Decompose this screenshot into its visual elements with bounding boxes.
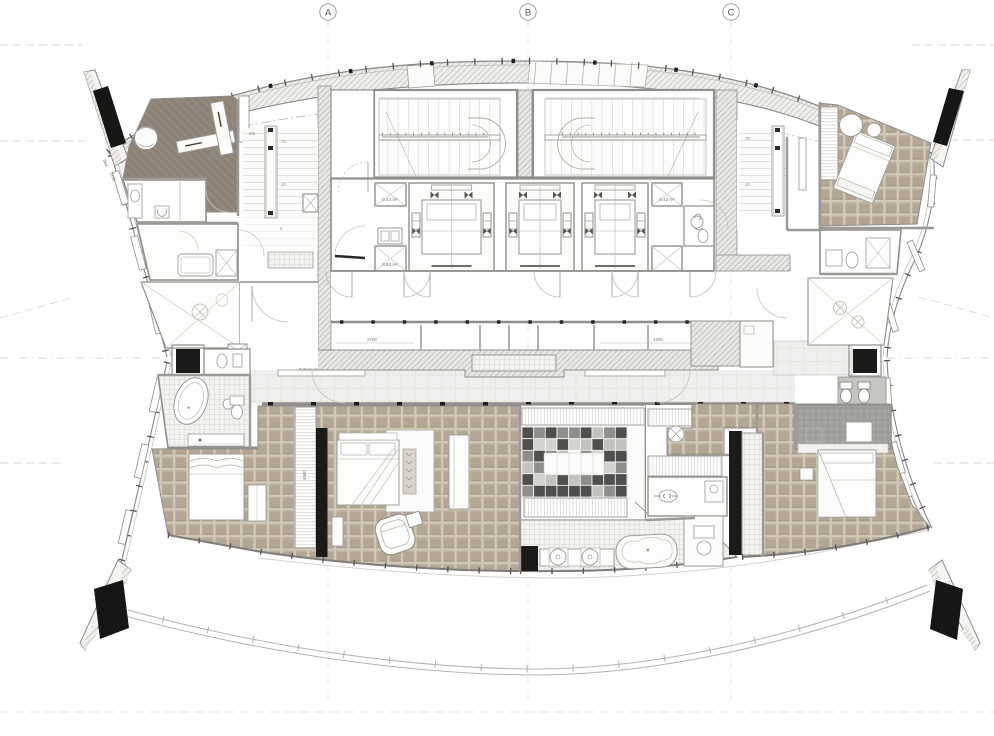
svg-text:0.62 m²: 0.62 m² [382,262,398,267]
svg-text:A: A [325,7,332,18]
svg-text:2700: 2700 [367,337,377,342]
svg-text:10: 10 [281,182,286,187]
svg-text:M2: M2 [249,131,256,136]
svg-text:C: C [728,7,735,18]
svg-text:4900: 4900 [302,470,307,480]
svg-text:4200: 4200 [653,337,663,342]
svg-text:75: 75 [281,139,286,144]
svg-text:75: 75 [745,136,750,141]
svg-text:0.42 m²: 0.42 m² [382,197,398,202]
svg-text:10: 10 [745,182,750,187]
svg-text:B: B [525,7,531,18]
svg-text:0.42 m²: 0.42 m² [659,197,675,202]
